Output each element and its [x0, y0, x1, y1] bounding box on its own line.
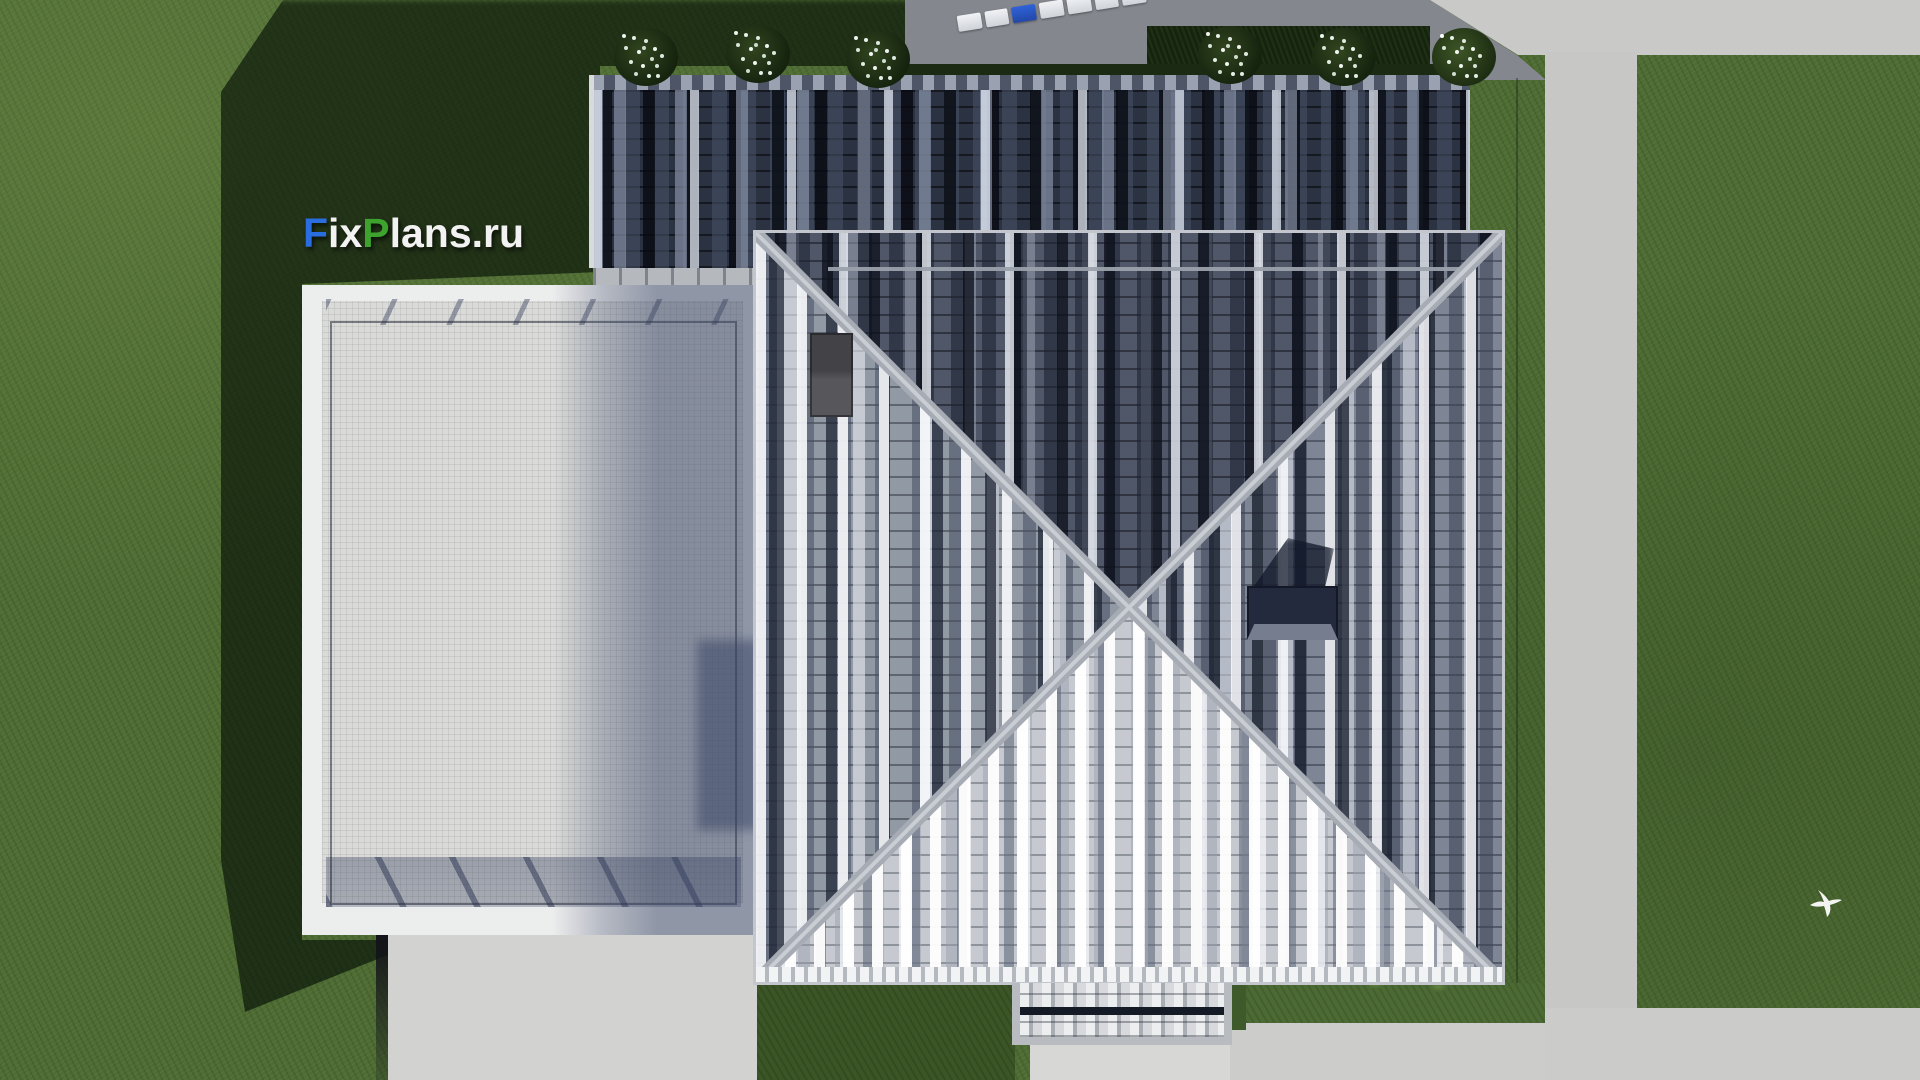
- flower-bush: [1198, 26, 1262, 84]
- grass-strip-bottom-right: [1225, 983, 1545, 1023]
- porch-slab: [1030, 1045, 1230, 1080]
- dark-roof-eave-edge: [589, 75, 594, 268]
- porch-gutter: [1020, 1007, 1224, 1015]
- terrace: [302, 285, 757, 935]
- paver-plank-blue: [1011, 4, 1037, 24]
- logo-part-rest: lans.ru: [390, 210, 524, 256]
- flower-bush: [846, 30, 910, 88]
- terrace-shadow: [302, 285, 757, 935]
- terrace-shadow-patch: [697, 640, 759, 830]
- bottom-right-plaza: [1545, 1008, 1920, 1080]
- paver-plank: [1093, 0, 1119, 10]
- site-plan-render: FixPlans.ru: [0, 0, 1920, 1080]
- fence-line: [1516, 78, 1518, 983]
- hip-ridge-caps: [756, 233, 1502, 982]
- paver-plank: [1066, 0, 1092, 15]
- flower-bush: [726, 25, 790, 83]
- fixplans-logo: FixPlans.ru: [303, 210, 524, 257]
- logo-part-p: P: [362, 210, 389, 256]
- right-garden-path: [1545, 52, 1637, 1080]
- flower-bush-sunlit: [1432, 28, 1496, 86]
- grass-strip-below-roof: [757, 985, 1015, 1080]
- flying-bird: [1808, 888, 1844, 920]
- porch-canopy: [1012, 983, 1232, 1045]
- flower-bush: [614, 28, 678, 86]
- chimney: [1247, 586, 1338, 640]
- driveway-shadow-gap: [376, 933, 388, 1080]
- logo-part-f: F: [303, 210, 328, 256]
- paver-plank: [1039, 0, 1065, 19]
- porch-side-grass: [1232, 985, 1246, 1030]
- main-hip-roof: [753, 230, 1505, 985]
- roof-hatch: [810, 333, 853, 417]
- roof-eave-tiles: [756, 967, 1502, 982]
- bottom-left-driveway: [388, 935, 760, 1080]
- paver-plank: [984, 8, 1010, 28]
- flower-bush: [1312, 28, 1376, 86]
- logo-part-ix: ix: [328, 210, 362, 256]
- paver-plank: [957, 12, 983, 32]
